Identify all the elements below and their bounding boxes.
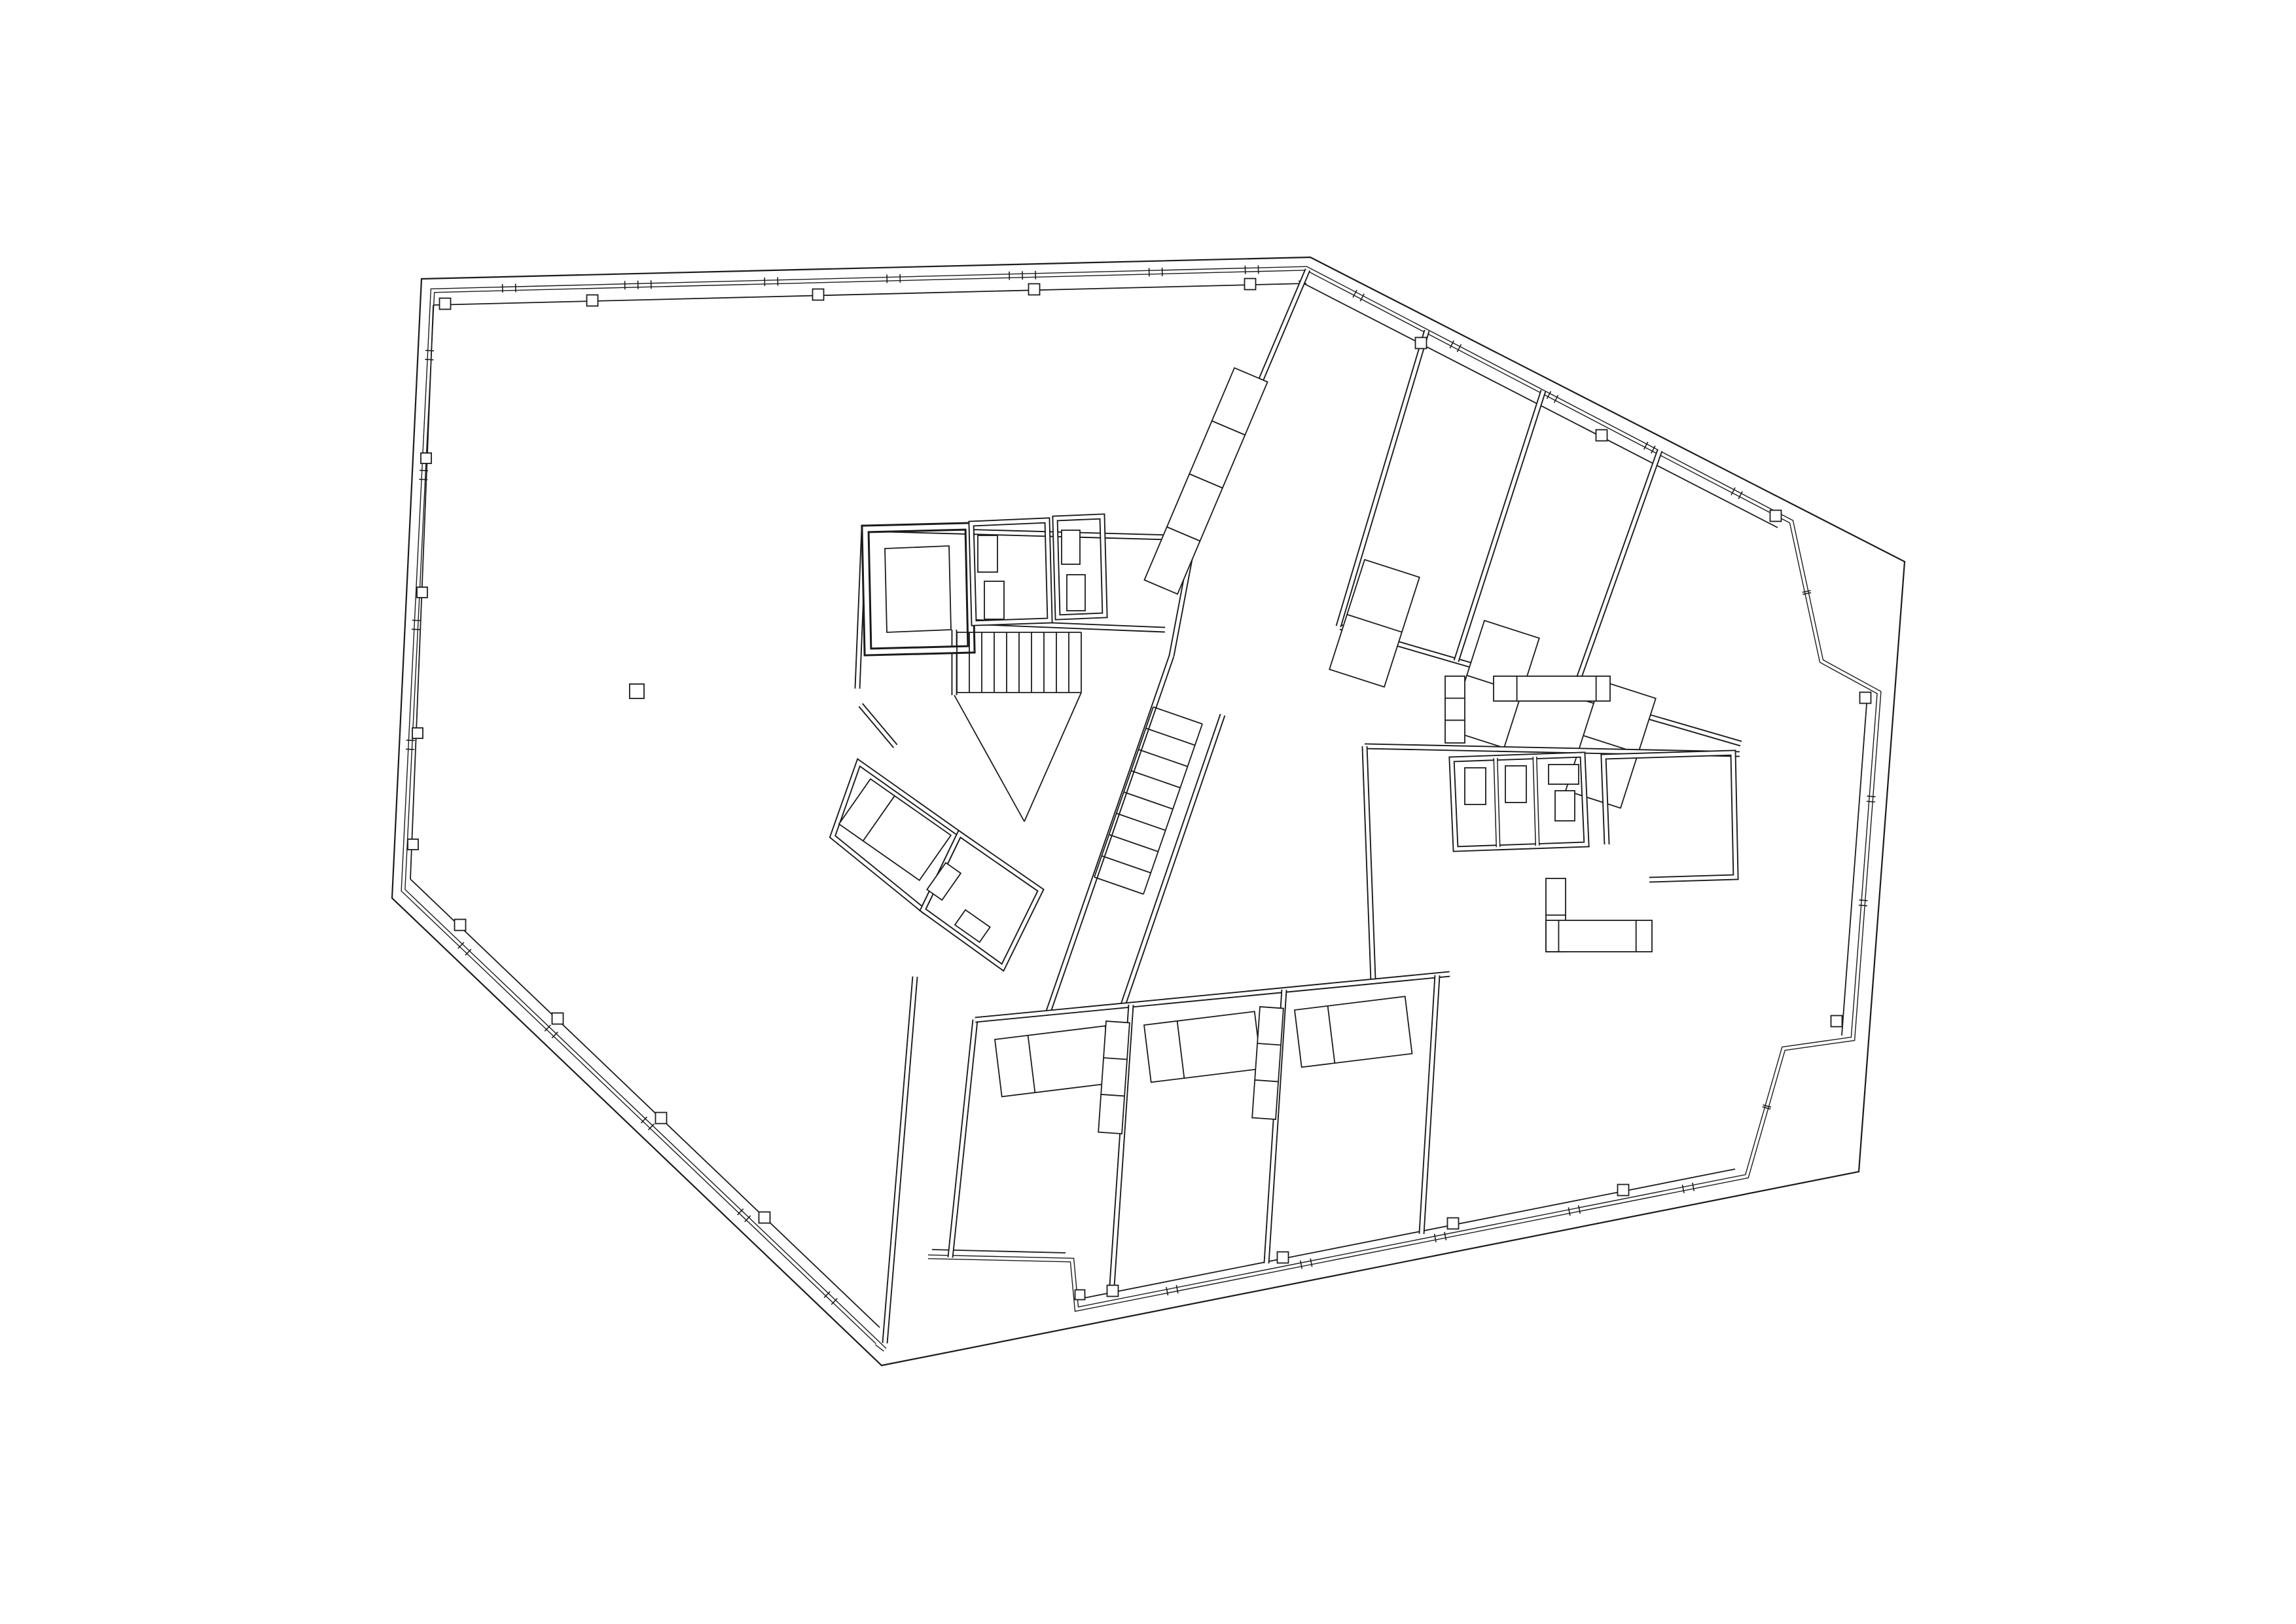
column-sw-4 (759, 1212, 770, 1223)
wall-ne-partition-2-core (1456, 391, 1543, 661)
stair-flight-lower-tread (1117, 814, 1166, 831)
fixture-east-wc-2 (1505, 766, 1526, 803)
stair-landing-edge-2 (1024, 693, 1081, 821)
stair-flight-lower-tread (1102, 856, 1151, 873)
bed-south-room-2 (1144, 1011, 1261, 1082)
fixture-east-basin (1549, 765, 1579, 784)
column-left-3 (412, 728, 423, 738)
column-ne-3 (1770, 511, 1782, 522)
wall-inner-face-southwest (410, 879, 880, 1327)
drawing-sheet (0, 0, 2296, 1624)
stair-flight-lower-tread (1109, 835, 1158, 852)
fixture-wc-2 (1067, 575, 1085, 611)
column-top-2 (587, 295, 598, 306)
fixture-wc-1 (984, 581, 1004, 619)
fixture-east-shower (1555, 791, 1575, 821)
column-left-2 (417, 587, 427, 598)
wardrobe-ne-strip (1144, 368, 1267, 594)
wall-south-wing-east-core (1422, 975, 1437, 1234)
kitchen-tall-cabinet (1445, 676, 1465, 743)
stair-landing-edge-1 (954, 695, 1024, 821)
window-mullions-east-mark (1859, 905, 1867, 906)
column-top-1 (440, 298, 451, 310)
bed-south-room-3 (1295, 996, 1412, 1067)
apartment-west-room-2 (923, 834, 1041, 967)
column-se-4 (1618, 1185, 1629, 1196)
column-left-2 (417, 587, 427, 598)
kitchen-counter (1494, 676, 1610, 701)
fixture-shower-2 (1062, 530, 1080, 564)
wall-hall-diagonal (861, 705, 895, 746)
wall-inner-face-east (1842, 695, 1867, 1036)
column-hall-free (630, 684, 644, 698)
window-mullions-left-mark (425, 359, 433, 360)
stair-flight-lower-tread (1153, 707, 1202, 724)
column-top-3 (813, 289, 824, 300)
stair-flight-lower-tread (1146, 729, 1195, 746)
column-sw-2 (552, 1013, 564, 1024)
wall-east-bath-partition-2 (1535, 757, 1537, 846)
column-ne-3 (1770, 511, 1782, 522)
window-mullions-left-mark (425, 350, 434, 351)
window-mullions-left-mark (419, 479, 427, 480)
apartment-west-room-2 (923, 834, 1041, 967)
column-left-3 (412, 728, 423, 738)
column-recess-1 (1075, 1290, 1085, 1300)
wall-east-bath-partition-1 (1496, 758, 1498, 847)
column-left-4 (408, 839, 418, 850)
wall-hall-tip (885, 977, 915, 1343)
bed-west-apartment (839, 779, 951, 880)
column-se-2 (1278, 1252, 1289, 1263)
stair-flight-lower-tread (1094, 877, 1143, 894)
stair-flight-upper (957, 632, 1081, 693)
column-left-1 (421, 453, 431, 463)
window-mullions-east-mark (1859, 900, 1868, 901)
column-top-1 (440, 298, 451, 310)
elevator-cab (885, 546, 951, 632)
sofa-horizontal (1546, 920, 1652, 952)
column-top-5 (1245, 279, 1256, 290)
wall-east-west-side (1365, 746, 1373, 980)
stair-flight-lower-tread (1139, 749, 1188, 767)
wall-south-wing-east (1422, 975, 1437, 1234)
fixture-east-shower (1555, 791, 1575, 821)
column-se-1 (1107, 1286, 1119, 1297)
fixture-shower-2 (1062, 530, 1080, 564)
column-hall-free (630, 684, 644, 698)
column-ne-1 (1416, 338, 1427, 349)
column-ne-1 (1416, 338, 1427, 349)
wall-inner-face-southwest (410, 879, 880, 1327)
stair-flight-lower-tread (1131, 771, 1180, 788)
facade-glazing-band-core (403, 268, 1879, 1350)
fixture-wc-1 (984, 581, 1004, 619)
wall-hall-diagonal-core (861, 705, 895, 746)
stair-flight-lower-tread (1124, 792, 1173, 809)
fixture-wc-2 (1067, 575, 1085, 611)
column-sw-4 (759, 1212, 770, 1223)
fixture-east-wc-2 (1505, 766, 1526, 803)
window-mullions-left-mark (412, 629, 420, 630)
wall-ne-partition-3 (1573, 450, 1660, 695)
wall-inner-face-southeast (1084, 1169, 1735, 1298)
site-outline (392, 257, 1905, 1365)
column-ne-4 (1860, 693, 1871, 704)
fixture-shower-1 (978, 535, 997, 572)
apartment-west-room-2-core (923, 834, 1041, 967)
column-sw-1 (455, 920, 466, 931)
column-top-4 (1029, 284, 1040, 295)
column-se-3 (1448, 1218, 1459, 1229)
wall-south-wing-west-core (950, 1020, 975, 1257)
wall-ne-partition-3-core (1573, 450, 1660, 695)
column-top-4 (1029, 284, 1040, 295)
column-ne-4 (1860, 693, 1871, 704)
column-se-4 (1618, 1185, 1629, 1196)
wall-hall-tip-core (885, 977, 915, 1343)
window-mullions-east-mark (1867, 801, 1875, 802)
column-top-2 (587, 295, 598, 306)
column-se-1 (1107, 1286, 1119, 1297)
fixture-shower-1 (978, 535, 997, 572)
wall-ne-partition-2 (1456, 391, 1543, 661)
wall-inner-face-east (1842, 695, 1867, 1036)
stair-landing-edge-1 (954, 695, 1024, 821)
window-mullions-east-mark (1867, 796, 1876, 797)
column-ne-2 (1596, 430, 1607, 441)
site-outline (392, 257, 1905, 1365)
column-sw-3 (656, 1113, 667, 1124)
wall-east-west-side-core (1365, 746, 1373, 980)
window-mullions-left-mark (406, 740, 415, 741)
wall-inner-face-southeast (1084, 1169, 1735, 1298)
window-mullions-left-mark (420, 470, 428, 471)
stair-landing-edge-2 (1024, 693, 1081, 821)
column-east-1 (1831, 1016, 1842, 1027)
facade-glazing-band (403, 268, 1879, 1350)
bed-south-room-1 (995, 1026, 1112, 1096)
bed-ne-room-1 (1329, 560, 1420, 687)
column-left-1 (421, 453, 431, 463)
floor-plan-canvas (0, 0, 2296, 1624)
column-sw-3 (656, 1113, 667, 1124)
fixture-east-basin (1549, 765, 1579, 784)
column-top-5 (1245, 279, 1256, 290)
column-sw-2 (552, 1013, 564, 1024)
stair-flight-lower (1094, 707, 1202, 894)
fixture-east-wc-1 (1465, 768, 1486, 804)
facade-glazing-band (403, 268, 1879, 1350)
fixture-east-wc-1 (1465, 768, 1486, 804)
window-mullions-left-mark (412, 620, 421, 621)
column-ne-2 (1596, 430, 1607, 441)
column-se-2 (1278, 1252, 1289, 1263)
column-east-1 (1831, 1016, 1842, 1027)
window-mullions-left-mark (406, 749, 414, 749)
wall-south-wing-west (950, 1020, 975, 1257)
column-recess-1 (1075, 1290, 1085, 1300)
column-se-3 (1448, 1218, 1459, 1229)
column-left-4 (408, 839, 418, 850)
elevator-cab (885, 546, 951, 632)
column-sw-1 (455, 920, 466, 931)
column-top-3 (813, 289, 824, 300)
